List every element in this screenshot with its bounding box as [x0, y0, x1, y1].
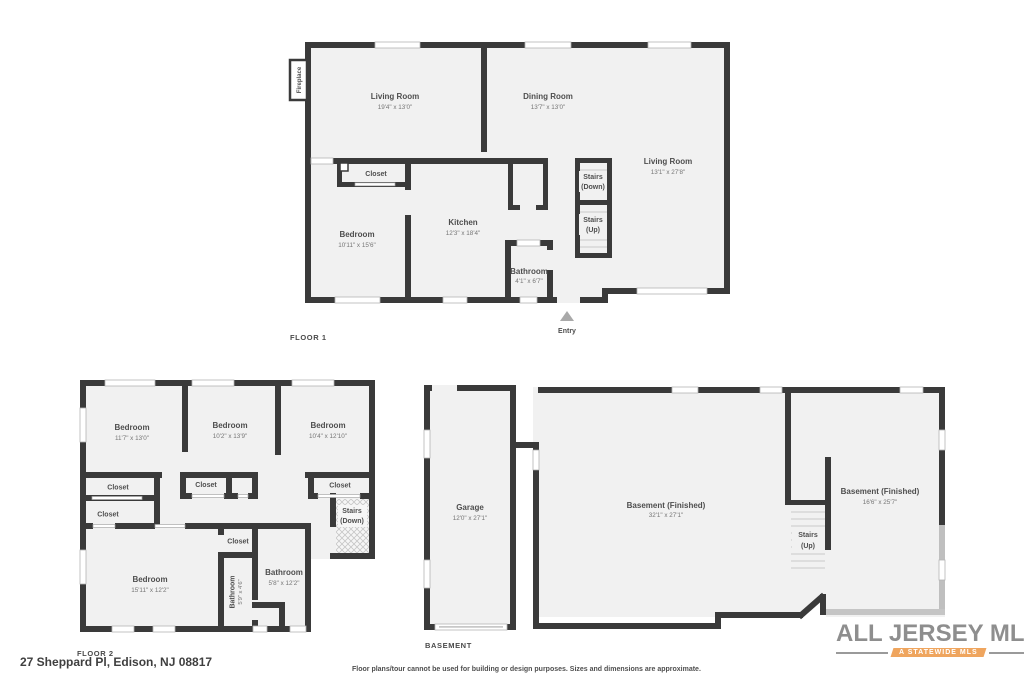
fireplace-label: Fireplace	[297, 66, 303, 93]
dining-room-name: Dining Room	[523, 92, 573, 101]
entry-label: Entry	[558, 328, 576, 335]
logo-brand-text: ALL JERSEY MLS	[836, 621, 1024, 647]
floor2-stairs-down-line1: Stairs	[342, 508, 362, 515]
garage-dims: 12'0" x 27'1"	[453, 515, 488, 522]
logo-tagline-text: A STATEWIDE MLS	[899, 649, 978, 656]
kitchen-dims: 12'3" x 18'4"	[446, 230, 481, 237]
floor2-bedroom2-dims: 10'2" x 13'9"	[213, 433, 248, 440]
floorplan-page: Fireplace Living Room 19'4" x 13'0" Dini…	[0, 0, 1024, 682]
disclaimer-text: Floor plans/tour cannot be used for buil…	[352, 666, 701, 673]
floor2-bathroom-name: Bathroom	[265, 568, 303, 577]
basement-main-dims: 32'1" x 27'1"	[649, 512, 684, 519]
tagline-rule-left	[836, 652, 888, 654]
basement-right-name: Basement (Finished)	[841, 487, 920, 496]
basement-title: BASEMENT	[425, 641, 472, 650]
living-room-left-name: Living Room	[371, 92, 419, 101]
floor2-plan: Bedroom 11'7" x 13'0" Bedroom 10'2" x 13…	[60, 370, 390, 670]
floor2-bathroom-small-name: Bathroom	[230, 575, 237, 608]
floor1-closet-label: Closet	[365, 171, 387, 178]
entry-marker: Entry	[558, 311, 576, 335]
floor1-bathroom-name: Bathroom	[510, 267, 548, 276]
entry-arrow-icon	[560, 311, 574, 321]
garage-name: Garage	[456, 503, 484, 512]
fireplace: Fireplace	[290, 60, 307, 100]
logo-tagline-banner: A STATEWIDE MLS	[890, 648, 986, 657]
floor1-bedroom-name: Bedroom	[339, 230, 374, 239]
living-room-right-name: Living Room	[644, 157, 692, 166]
floor1-bathroom-dims: 4'1" x 6'7"	[515, 278, 543, 285]
floor2-closet1-label: Closet	[107, 485, 129, 492]
floor2-bedroom2-name: Bedroom	[212, 421, 247, 430]
basement-right-dims: 16'6" x 25'7"	[863, 499, 898, 506]
stairs-up-line2: (Up)	[586, 227, 600, 234]
floor2-closet3-label: Closet	[329, 483, 351, 490]
property-address: 27 Sheppard Pl, Edison, NJ 08817	[20, 655, 212, 669]
basement-stairs-up-line2: (Up)	[801, 543, 815, 550]
logo-tagline-row: A STATEWIDE MLS	[836, 648, 1024, 657]
floor1-title: FLOOR 1	[290, 333, 327, 342]
floor2-bedroom3-dims: 10'4" x 12'10"	[309, 433, 347, 440]
stairs-down-line1: Stairs	[583, 174, 603, 181]
floor2-bedroom4-dims: 15'11" x 12'2"	[131, 587, 169, 594]
floor2-closet2-label: Closet	[195, 482, 217, 489]
floor2-bedroom3-name: Bedroom	[310, 421, 345, 430]
mls-logo: ALL JERSEY MLS A STATEWIDE MLS	[831, 615, 1023, 675]
basement-main-name: Basement (Finished)	[627, 501, 706, 510]
floor2-bathroom-small-dims: 5'9" x 4'6"	[238, 579, 244, 604]
basement-stairs-up-line1: Stairs	[798, 532, 818, 539]
stairs-up-line1: Stairs	[583, 217, 603, 224]
floor2-stairs-down-line2: (Down)	[340, 518, 364, 525]
living-room-right-dims: 13'1" x 27'8"	[651, 169, 686, 176]
floor2-bedroom1-dims: 11'7" x 13'0"	[115, 435, 149, 442]
floor2-closet5-label: Closet	[227, 539, 249, 546]
floor1-plan: Fireplace Living Room 19'4" x 13'0" Dini…	[285, 35, 745, 350]
floor2-bedroom4-name: Bedroom	[132, 575, 167, 584]
stairs-down-line2: (Down)	[581, 184, 605, 191]
tagline-rule-right	[989, 652, 1024, 654]
living-room-left-dims: 19'4" x 13'0"	[378, 104, 413, 111]
kitchen-name: Kitchen	[448, 218, 477, 227]
floor1-bedroom-dims: 10'11" x 15'6"	[338, 242, 376, 249]
floor2-bathroom-dims: 5'8" x 12'2"	[268, 580, 299, 587]
basement-exterior-gap	[516, 385, 533, 442]
dining-room-dims: 13'7" x 13'0"	[531, 104, 566, 111]
floor2-closet4-label: Closet	[97, 512, 119, 519]
floor2-bedroom1-name: Bedroom	[114, 423, 149, 432]
